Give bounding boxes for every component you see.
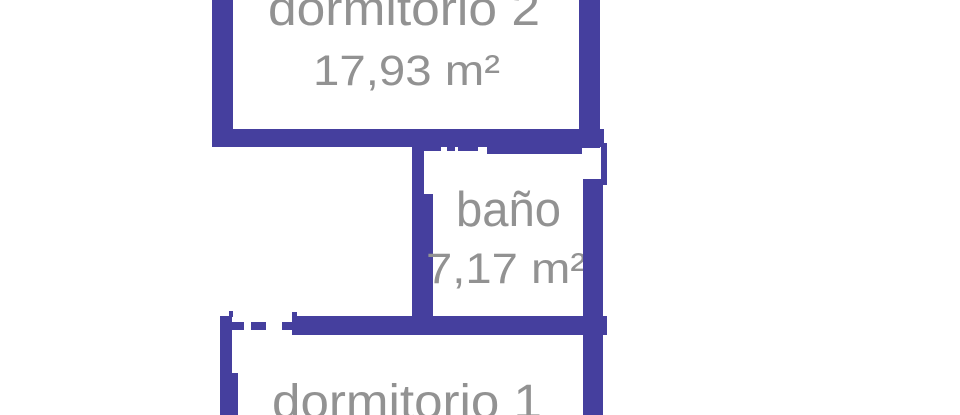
svg-text:baño: baño — [456, 183, 561, 237]
svg-text:dormitorio 1: dormitorio 1 — [272, 376, 542, 415]
svg-text:dormitorio 2: dormitorio 2 — [268, 0, 540, 36]
svg-text:17,93 m²: 17,93 m² — [313, 47, 500, 95]
svg-text:7,17 m²: 7,17 m² — [426, 245, 586, 293]
